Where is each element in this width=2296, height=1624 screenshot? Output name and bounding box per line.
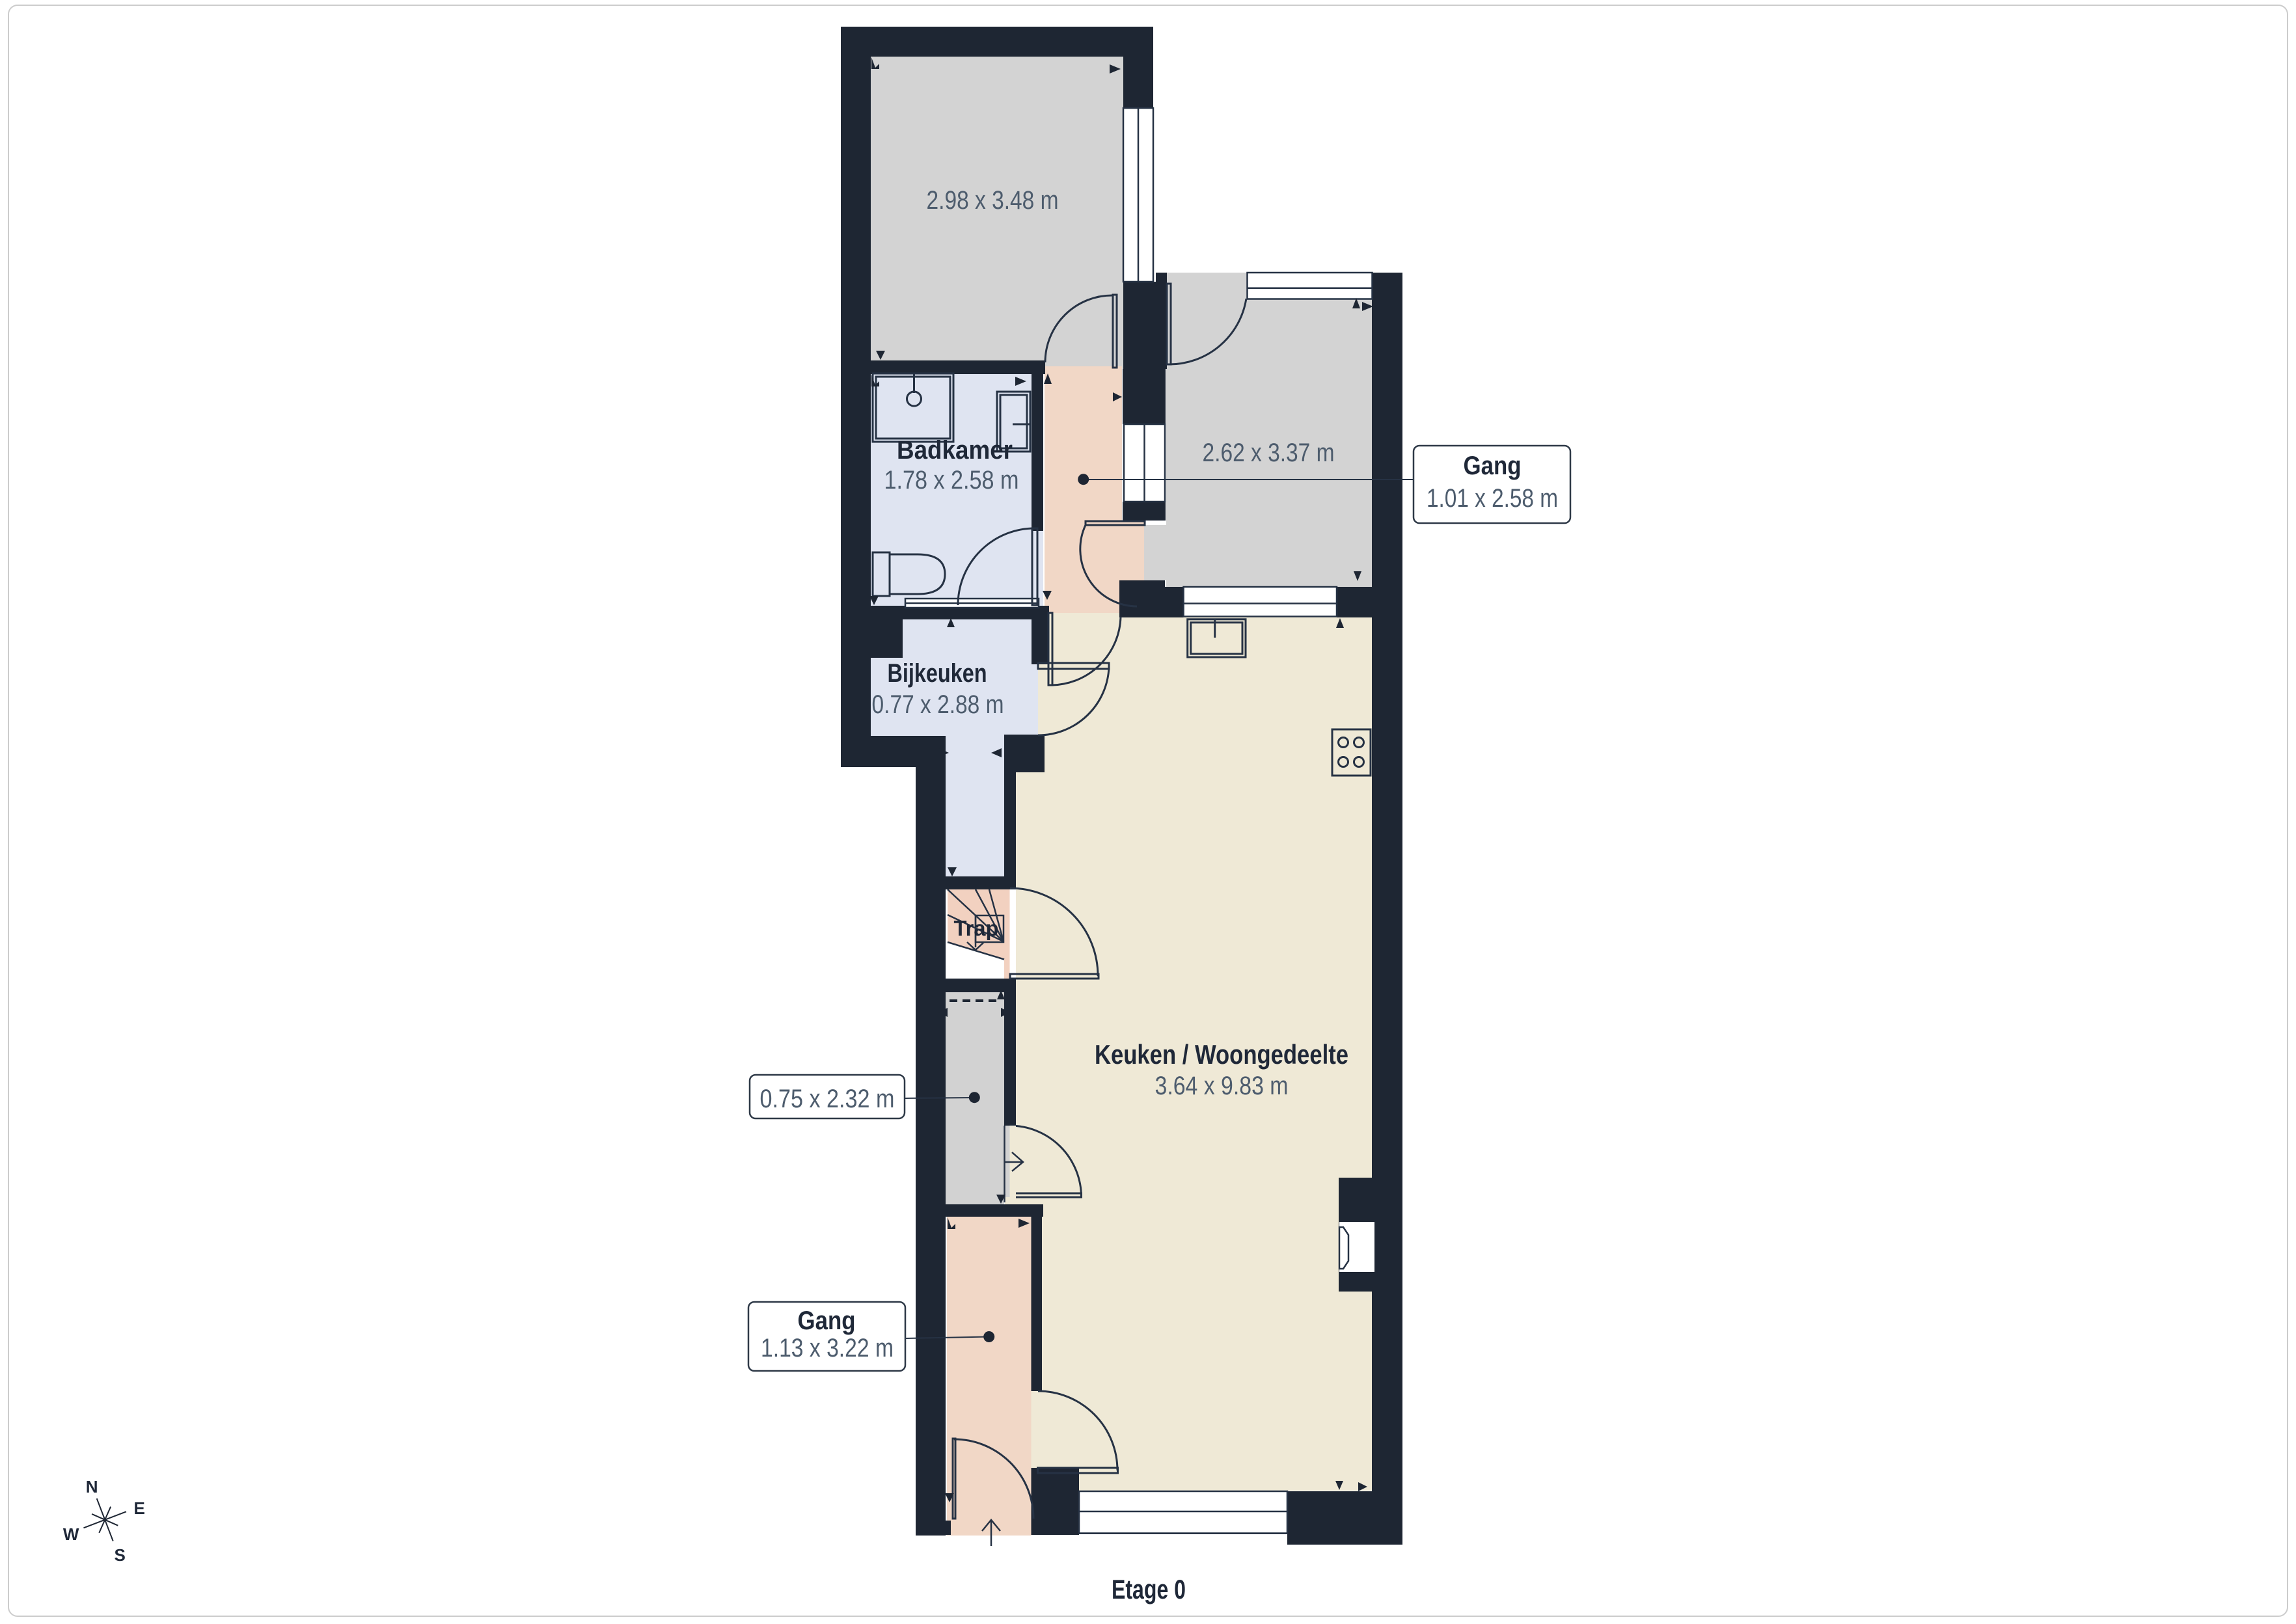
svg-text:S: S	[115, 1545, 126, 1565]
svg-text:W: W	[63, 1524, 79, 1544]
svg-text:N: N	[86, 1477, 98, 1496]
svg-text:Keuken / Woongedeelte: Keuken / Woongedeelte	[1095, 1039, 1348, 1070]
svg-text:1.01 x 2.58 m: 1.01 x 2.58 m	[1427, 484, 1558, 513]
svg-text:Badkamer: Badkamer	[897, 436, 1013, 465]
svg-text:Etage 0: Etage 0	[1112, 1574, 1186, 1604]
svg-text:Gang: Gang	[798, 1306, 856, 1335]
svg-text:2.98 x 3.48 m: 2.98 x 3.48 m	[927, 186, 1059, 215]
svg-text:Bijkeuken: Bijkeuken	[888, 659, 987, 688]
svg-text:1.13 x 3.22 m: 1.13 x 3.22 m	[761, 1334, 894, 1362]
svg-text:0.77 x 2.88 m: 0.77 x 2.88 m	[872, 690, 1004, 719]
svg-text:Gang: Gang	[1464, 452, 1522, 480]
svg-text:2.62 x 3.37 m: 2.62 x 3.37 m	[1203, 439, 1335, 467]
svg-text:1.78 x 2.58 m: 1.78 x 2.58 m	[884, 466, 1019, 494]
svg-text:E: E	[134, 1498, 145, 1518]
svg-text:0.75 x 2.32 m: 0.75 x 2.32 m	[760, 1085, 895, 1113]
svg-text:3.64 x 9.83 m: 3.64 x 9.83 m	[1155, 1072, 1289, 1100]
svg-text:Trap: Trap	[954, 916, 999, 940]
